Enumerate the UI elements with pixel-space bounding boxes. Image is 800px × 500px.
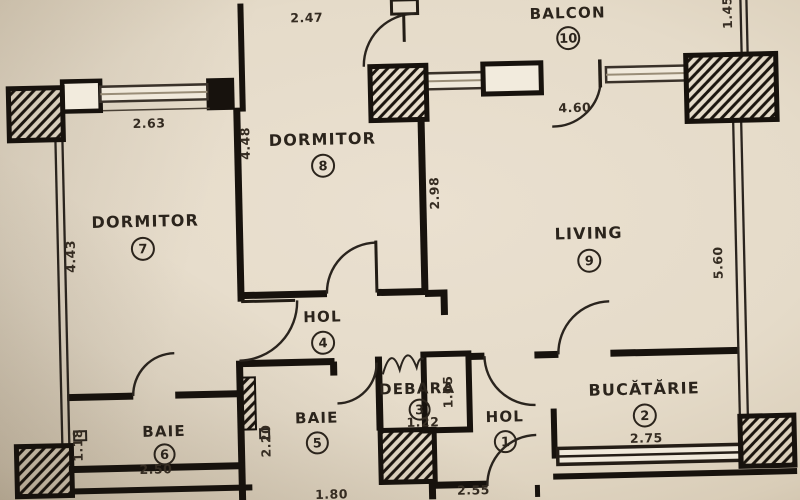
column-pillar-top-middle bbox=[370, 65, 427, 120]
wall-hol1-top-mid bbox=[534, 354, 558, 355]
wall-dormitor8-bottom-right bbox=[377, 291, 425, 292]
column-pillar-bottom-right bbox=[740, 415, 795, 466]
door-swing-arc bbox=[132, 353, 175, 396]
column-pillar-top-right bbox=[686, 53, 777, 121]
window-midline bbox=[426, 80, 483, 81]
column-pillar-top-left bbox=[8, 88, 63, 141]
dimension-label: 2.55 bbox=[457, 482, 490, 498]
door-leaf bbox=[404, 14, 405, 42]
pillars bbox=[8, 53, 795, 497]
balcony-divider bbox=[746, 0, 747, 52]
dimension-line bbox=[101, 108, 210, 110]
door-swing-arc bbox=[363, 14, 416, 67]
door-leaf bbox=[600, 59, 601, 87]
dimension-label: 4.60 bbox=[558, 100, 591, 116]
room-label-baie6: BAIE bbox=[142, 422, 186, 441]
room-label-dormitor7: DORMITOR bbox=[91, 211, 199, 232]
dimension-label: 1.18 bbox=[70, 429, 86, 462]
wall-dormitor8-living bbox=[421, 117, 425, 291]
door-leaf bbox=[376, 241, 377, 293]
room-number: 7 bbox=[138, 242, 147, 257]
wall-right-outer bbox=[741, 120, 748, 416]
room-number: 10 bbox=[559, 31, 577, 46]
wall-hol4-baie5 bbox=[240, 362, 335, 364]
balcony-divider bbox=[740, 0, 741, 52]
room-label-baie5: BAIE bbox=[295, 408, 339, 427]
wall-left-inner bbox=[62, 140, 69, 446]
dimension-label: 5.60 bbox=[710, 246, 726, 279]
window-frame-box bbox=[483, 63, 542, 94]
pipe-shaft bbox=[242, 377, 256, 429]
floor-plan-photo: BALCON 10 DORMITOR 8 DORMITOR 7 LIVING 9… bbox=[0, 0, 800, 500]
wall-exterior-bottom-left bbox=[72, 487, 252, 491]
window-frame-box bbox=[62, 81, 101, 112]
dimension-label: 1.80 bbox=[315, 486, 348, 500]
dimension-label: 1.45 bbox=[719, 0, 735, 29]
column-pillar-bottom-middle bbox=[380, 429, 435, 482]
wall-exterior-bottom-right bbox=[553, 471, 797, 477]
room-number: 2 bbox=[640, 409, 649, 424]
dimension-label: 4.43 bbox=[63, 240, 79, 273]
dimension-label: 2.20 bbox=[258, 425, 274, 458]
wall-right-inner bbox=[733, 120, 740, 416]
room-number: 8 bbox=[318, 159, 327, 174]
dimension-label: 2.63 bbox=[132, 115, 165, 131]
room-number: 5 bbox=[313, 436, 322, 451]
floor-plan: BALCON 10 DORMITOR 8 DORMITOR 7 LIVING 9… bbox=[0, 0, 800, 500]
door-leaf bbox=[241, 300, 295, 301]
door-swing-arc bbox=[557, 301, 610, 354]
door-swing-arc bbox=[326, 243, 377, 294]
room-label-hol4: HOL bbox=[303, 307, 342, 326]
dimension-label: 1.22 bbox=[406, 414, 439, 430]
wall-living-bucatarie bbox=[610, 350, 739, 353]
dimension-label: 2.47 bbox=[290, 10, 323, 26]
room-number: 4 bbox=[318, 336, 327, 351]
column-pillar-bottom-left bbox=[16, 446, 72, 497]
shaft-box bbox=[391, 0, 417, 14]
wall-left-outer bbox=[55, 140, 62, 446]
wall-stub bbox=[425, 293, 444, 315]
wall-baie6-top-left bbox=[67, 396, 133, 397]
wall-baie6-top-right bbox=[175, 394, 243, 396]
door-swing-arc bbox=[238, 300, 298, 360]
dimension-label: 4.48 bbox=[237, 127, 253, 160]
wall-bucatarie-left-stub bbox=[554, 409, 555, 459]
room-number: 1 bbox=[501, 435, 510, 450]
wall-corner-block bbox=[206, 78, 235, 111]
room-number: 9 bbox=[585, 254, 594, 269]
dimension-label: 2.50 bbox=[139, 461, 172, 477]
room-label-dormitor8: DORMITOR bbox=[269, 129, 377, 150]
room-label-living: LIVING bbox=[554, 223, 623, 244]
accordion-door-debara bbox=[382, 355, 423, 374]
door-swing-arc bbox=[486, 435, 537, 486]
wall bbox=[240, 4, 242, 112]
room-label-hol1: HOL bbox=[485, 407, 524, 426]
door-swing-arc bbox=[337, 363, 378, 404]
dimension-label: 1.05 bbox=[440, 375, 456, 408]
dimension-label: 2.98 bbox=[426, 177, 442, 210]
dimension-label: 2.75 bbox=[630, 430, 663, 446]
room-label-bucatarie: BUCĂTĂRIE bbox=[588, 378, 700, 400]
room-label-balcon: BALCON bbox=[529, 3, 606, 23]
door-swing-arc bbox=[484, 355, 535, 406]
wall-dormitor8-bottom-left bbox=[241, 294, 327, 296]
